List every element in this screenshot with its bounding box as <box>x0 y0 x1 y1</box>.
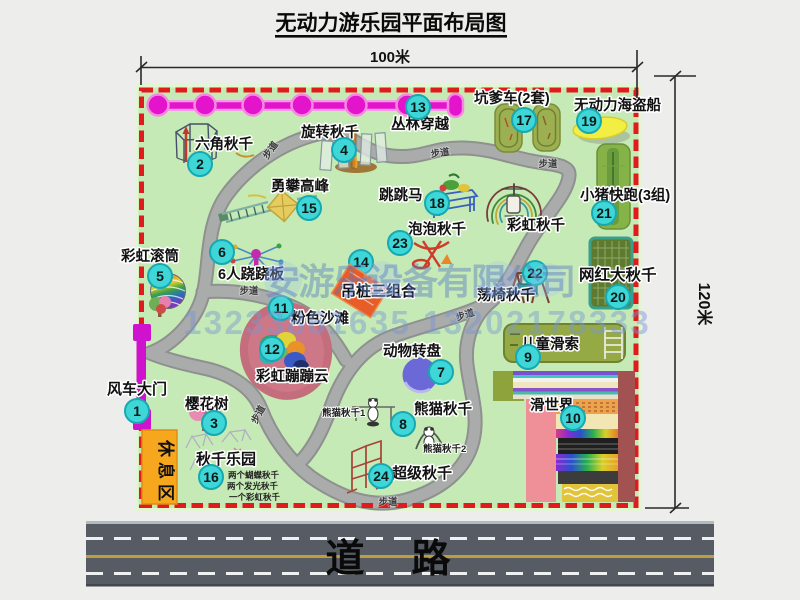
svg-text:步道: 步道 <box>239 285 259 297</box>
svg-text:7: 7 <box>437 364 445 380</box>
svg-text:秋千乐园: 秋千乐园 <box>196 450 256 468</box>
svg-text:20: 20 <box>610 289 626 305</box>
svg-text:无动力游乐园平面布局图: 无动力游乐园平面布局图 <box>276 11 507 35</box>
svg-text:泡泡秋千: 泡泡秋千 <box>408 220 466 238</box>
svg-text:24: 24 <box>373 468 389 484</box>
svg-text:旋转秋千: 旋转秋千 <box>300 123 359 141</box>
svg-text:步道: 步道 <box>538 158 558 170</box>
svg-text:六角秋千: 六角秋千 <box>195 135 253 153</box>
svg-text:10: 10 <box>565 410 581 426</box>
svg-text:8: 8 <box>399 416 407 432</box>
svg-text:小猪快跑(3组): 小猪快跑(3组) <box>580 186 670 204</box>
svg-text:超级秋千: 超级秋千 <box>391 464 452 482</box>
svg-text:彩虹蹦蹦云: 彩虹蹦蹦云 <box>255 367 329 385</box>
svg-text:17: 17 <box>516 112 532 128</box>
svg-text:步道: 步道 <box>378 496 398 508</box>
svg-text:1: 1 <box>133 403 141 419</box>
svg-text:熊猫秋千2: 熊猫秋千2 <box>423 443 466 455</box>
svg-text:坑爹车(2套): 坑爹车(2套) <box>474 89 550 107</box>
svg-text:网红大秋千: 网红大秋千 <box>579 265 657 284</box>
svg-text:3: 3 <box>210 415 218 431</box>
svg-text:安游乐设备有限公司: 安游乐设备有限公司 <box>264 261 575 302</box>
svg-text:樱花树: 樱花树 <box>185 395 229 413</box>
svg-text:彩虹秋千: 彩虹秋千 <box>506 216 565 234</box>
svg-text:跳跳马: 跳跳马 <box>379 186 423 204</box>
svg-text:风车大门: 风车大门 <box>107 380 167 398</box>
svg-text:5: 5 <box>156 268 164 284</box>
svg-text:两个发光秋千: 两个发光秋千 <box>227 481 279 491</box>
svg-text:4: 4 <box>340 142 348 158</box>
svg-text:勇攀高峰: 勇攀高峰 <box>271 177 329 195</box>
svg-text:动物转盘: 动物转盘 <box>383 342 441 360</box>
svg-text:一个彩虹秋千: 一个彩虹秋千 <box>229 492 281 502</box>
svg-text:熊猫秋千1: 熊猫秋千1 <box>322 407 366 419</box>
svg-text:9: 9 <box>524 349 532 365</box>
svg-text:2: 2 <box>196 156 204 172</box>
svg-text:6: 6 <box>218 244 226 260</box>
svg-text:熊猫秋千: 熊猫秋千 <box>414 400 472 418</box>
svg-text:13233861635 13202178333: 13233861635 13202178333 <box>183 304 651 341</box>
svg-text:12: 12 <box>264 341 280 357</box>
svg-text:15: 15 <box>301 200 317 216</box>
svg-text:120米: 120米 <box>695 283 714 327</box>
svg-text:21: 21 <box>596 205 612 221</box>
svg-text:13: 13 <box>410 99 426 115</box>
svg-text:彩虹滚筒: 彩虹滚筒 <box>120 247 179 265</box>
svg-text:23: 23 <box>392 235 408 251</box>
svg-text:16: 16 <box>203 469 219 485</box>
svg-text:道: 道 <box>325 538 364 581</box>
svg-text:休息区: 休息区 <box>156 439 176 506</box>
svg-text:路: 路 <box>411 538 451 581</box>
svg-text:两个蝴蝶秋千: 两个蝴蝶秋千 <box>228 470 280 480</box>
svg-text:19: 19 <box>581 113 597 129</box>
svg-text:100米: 100米 <box>370 48 411 66</box>
svg-text:18: 18 <box>429 195 445 211</box>
